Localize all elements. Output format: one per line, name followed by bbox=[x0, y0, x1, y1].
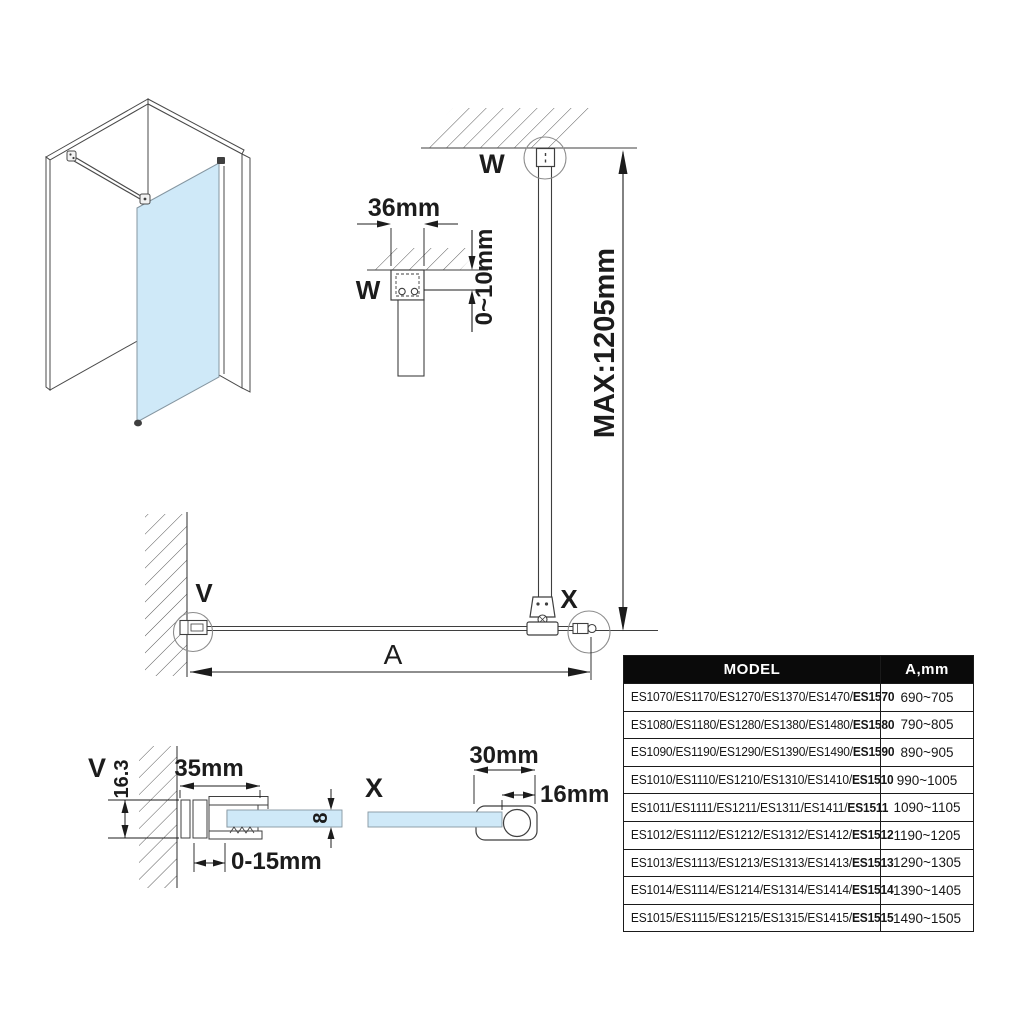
label-v-plan: V bbox=[195, 578, 213, 608]
label-v-detail: V bbox=[88, 753, 106, 783]
model-cell: ES1011/ES1111/ES1211/ES1311/ES1411/ES151… bbox=[624, 794, 881, 822]
label-x-plan: X bbox=[560, 584, 578, 614]
table-row: ES1080/ES1180/ES1280/ES1380/ES1480/ES158… bbox=[624, 711, 974, 739]
table-row: ES1010/ES1110/ES1210/ES1310/ES1410/ES151… bbox=[624, 766, 974, 794]
dimension-30mm bbox=[474, 767, 535, 805]
isometric-view bbox=[46, 99, 250, 426]
bar-section bbox=[398, 300, 424, 376]
detail-x-section bbox=[368, 767, 537, 841]
label-w-plan: W bbox=[479, 149, 505, 179]
table-row: ES1070/ES1170/ES1270/ES1370/ES1470/ES157… bbox=[624, 684, 974, 712]
model-cell: ES1013/ES1113/ES1213/ES1313/ES1413/ES151… bbox=[624, 849, 881, 877]
dimension-8-label: 8 bbox=[310, 812, 332, 823]
dimension-0-10mm-label: 0~10mm bbox=[471, 229, 498, 326]
model-table: MODEL A,mm ES1070/ES1170/ES1270/ES1370/E… bbox=[623, 655, 974, 932]
a-cell: 1290~1305 bbox=[881, 849, 974, 877]
a-cell: 890~905 bbox=[881, 739, 974, 767]
a-cell: 1190~1205 bbox=[881, 821, 974, 849]
glass-clamp bbox=[527, 622, 558, 635]
model-cell: ES1070/ES1170/ES1270/ES1370/ES1470/ES157… bbox=[624, 684, 881, 712]
model-cell: ES1015/ES1115/ES1215/ES1315/ES1415/ES151… bbox=[624, 904, 881, 932]
label-x-detail: X bbox=[365, 773, 383, 803]
technical-drawing-page: W W V X V X A MAX:1205mm 36mm 0~10mm 35m… bbox=[0, 0, 1024, 1024]
a-column-header: A,mm bbox=[881, 656, 974, 684]
model-cell: ES1090/ES1190/ES1290/ES1390/ES1490/ES159… bbox=[624, 739, 881, 767]
label-w-detail: W bbox=[356, 275, 381, 305]
dimension-a-label: A bbox=[384, 639, 403, 670]
table-row: ES1013/ES1113/ES1213/ES1313/ES1413/ES151… bbox=[624, 849, 974, 877]
dimension-36mm-label: 36mm bbox=[368, 194, 440, 222]
model-cell: ES1010/ES1110/ES1210/ES1310/ES1410/ES151… bbox=[624, 766, 881, 794]
model-column-header: MODEL bbox=[624, 656, 881, 684]
dimension-16mm-label: 16mm bbox=[540, 781, 609, 808]
end-connector bbox=[573, 624, 596, 634]
bar-hole bbox=[504, 810, 531, 837]
glass-section-x bbox=[368, 812, 502, 827]
ceiling-bracket bbox=[537, 149, 555, 167]
wall-connector bbox=[180, 621, 207, 635]
table-row: ES1014/ES1114/ES1214/ES1314/ES1414/ES151… bbox=[624, 877, 974, 905]
table-row: ES1015/ES1115/ES1215/ES1315/ES1415/ES151… bbox=[624, 904, 974, 932]
dimension-0-15mm bbox=[194, 843, 225, 872]
a-cell: 990~1005 bbox=[881, 766, 974, 794]
table-header-row: MODEL A,mm bbox=[624, 656, 974, 684]
model-cell: ES1014/ES1114/ES1214/ES1314/ES1414/ES151… bbox=[624, 877, 881, 905]
ceiling-bracket-section bbox=[391, 270, 424, 300]
floor-foot bbox=[134, 420, 142, 427]
model-cell: ES1080/ES1180/ES1280/ES1380/ES1480/ES158… bbox=[624, 711, 881, 739]
bar-pivot bbox=[527, 597, 558, 635]
wall-hatch bbox=[145, 514, 187, 676]
a-cell: 690~705 bbox=[881, 684, 974, 712]
a-cell: 1490~1505 bbox=[881, 904, 974, 932]
dimension-30mm-label: 30mm bbox=[469, 742, 538, 769]
dimension-16-3-label: 16.3 bbox=[111, 760, 133, 799]
dimension-35mm-label: 35mm bbox=[174, 755, 243, 782]
dimension-35mm bbox=[180, 783, 260, 799]
table-row: ES1090/ES1190/ES1290/ES1390/ES1490/ES159… bbox=[624, 739, 974, 767]
a-cell: 790~805 bbox=[881, 711, 974, 739]
table-row: ES1012/ES1112/ES1212/ES1312/ES1412/ES151… bbox=[624, 821, 974, 849]
model-cell: ES1012/ES1112/ES1212/ES1312/ES1412/ES151… bbox=[624, 821, 881, 849]
ceiling-hatch bbox=[415, 108, 591, 148]
wall-profile-top-fitting bbox=[217, 157, 225, 164]
a-cell: 1390~1405 bbox=[881, 877, 974, 905]
dimension-0-15mm-label: 0-15mm bbox=[231, 848, 322, 875]
dimension-max-label: MAX:1205mm bbox=[589, 248, 621, 438]
table-row: ES1011/ES1111/ES1211/ES1311/ES1411/ES151… bbox=[624, 794, 974, 822]
a-cell: 1090~1105 bbox=[881, 794, 974, 822]
